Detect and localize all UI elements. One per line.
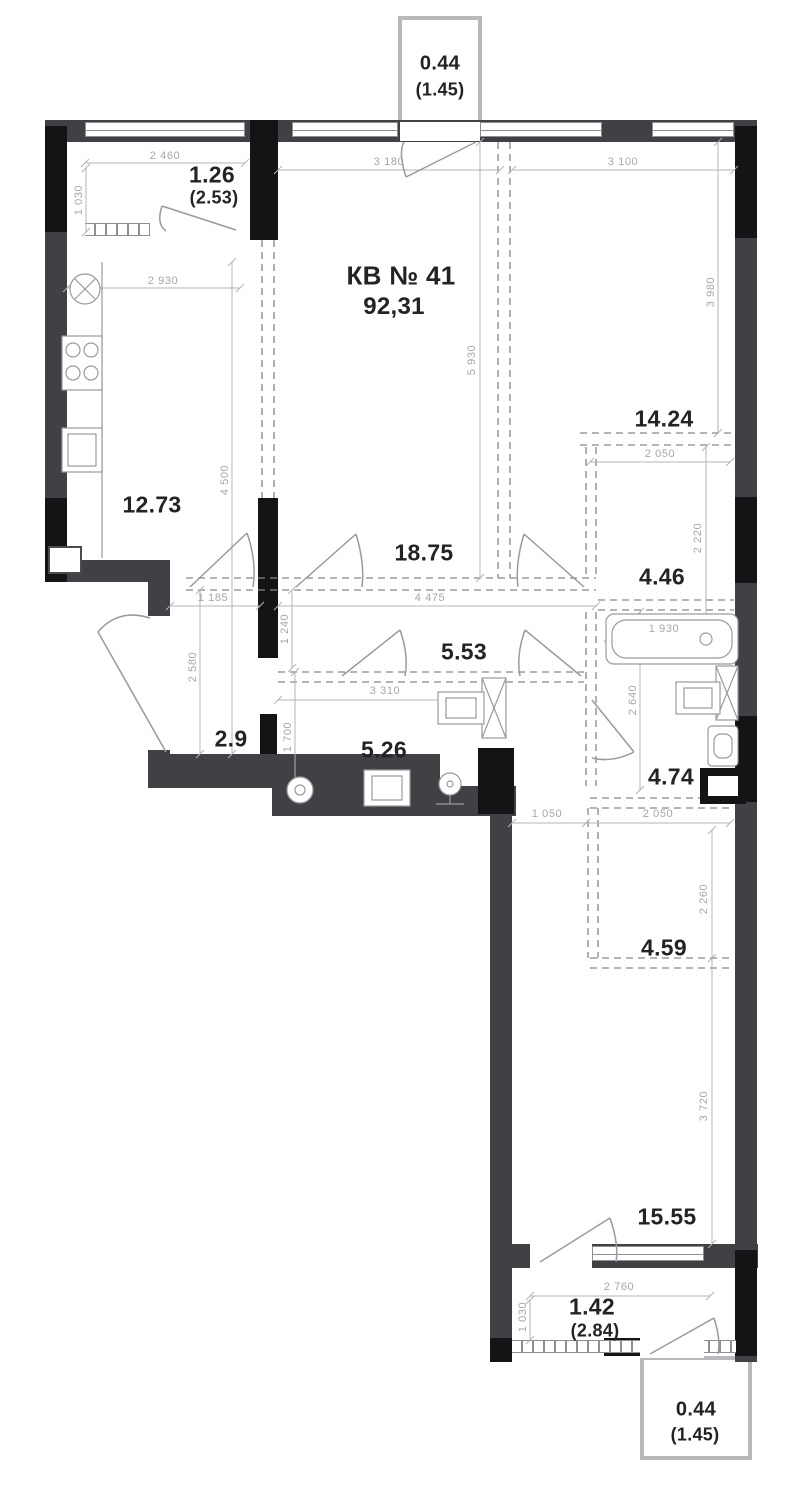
balcony-bottom-right-full: (1.45): [671, 1425, 720, 1446]
dim-4475: 4 475: [415, 592, 446, 604]
dim-2640: 2 640: [627, 685, 639, 716]
dim-4500: 4 500: [219, 465, 231, 496]
dim-1700: 1 700: [282, 722, 294, 753]
dim-2260: 2 260: [698, 884, 710, 915]
dim-3310: 3 310: [370, 685, 401, 697]
balcony-top-full: (1.45): [416, 80, 465, 101]
balcony-bottom-right-area: 0.44: [676, 1399, 716, 1422]
room-label-living: 18.75: [394, 540, 453, 567]
room-label-hall: 2.9: [215, 726, 248, 753]
apartment-total-area: 92,31: [363, 293, 425, 321]
floor-plan: КВ № 41 92,31 12.73 18.75 14.24 4.46 2.9…: [0, 0, 800, 1485]
apartment-title: КВ № 41: [346, 261, 455, 292]
room-label-kitchen: 12.73: [122, 492, 181, 519]
dim-1240: 1 240: [279, 614, 291, 645]
dim-2760: 2 760: [604, 1281, 635, 1293]
balcony-top-area: 0.44: [420, 53, 460, 76]
room-label-dressing-bottom: 4.59: [641, 935, 687, 962]
dim-5930: 5 930: [466, 345, 478, 376]
dim-3720: 3 720: [698, 1091, 710, 1122]
dim-1185: 1 185: [198, 592, 229, 604]
room-label-dressing-top: 4.46: [639, 564, 685, 591]
dim-3180: 3 180: [374, 156, 405, 168]
dim-1030-top: 1 030: [73, 185, 85, 216]
dim-3980: 3 980: [705, 277, 717, 308]
dim-2460: 2 460: [150, 150, 181, 162]
balcony-bottom-full: (2.84): [571, 1321, 620, 1342]
dim-2050-bottom: 2 050: [643, 808, 674, 820]
dim-2050-top: 2 050: [645, 448, 676, 460]
room-label-bathroom-2: 4.74: [648, 764, 694, 791]
room-label-bedroom-top: 14.24: [634, 406, 693, 433]
room-label-corridor: 5.53: [441, 639, 487, 666]
dim-2580: 2 580: [187, 652, 199, 683]
balcony-bottom-area: 1.42: [569, 1294, 615, 1321]
dim-3100: 3 100: [608, 156, 639, 168]
room-label-bedroom-bottom: 15.55: [637, 1204, 696, 1231]
dim-1050: 1 050: [532, 808, 563, 820]
dim-2220: 2 220: [692, 523, 704, 554]
dim-2930: 2 930: [148, 275, 179, 287]
room-label-bathroom: 5.26: [361, 737, 407, 764]
balcony-top-left-full: (2.53): [190, 188, 239, 209]
dim-1930: 1 930: [649, 623, 680, 635]
dim-1030-bottom: 1 030: [517, 1302, 529, 1333]
balcony-top-left-area: 1.26: [189, 162, 235, 189]
